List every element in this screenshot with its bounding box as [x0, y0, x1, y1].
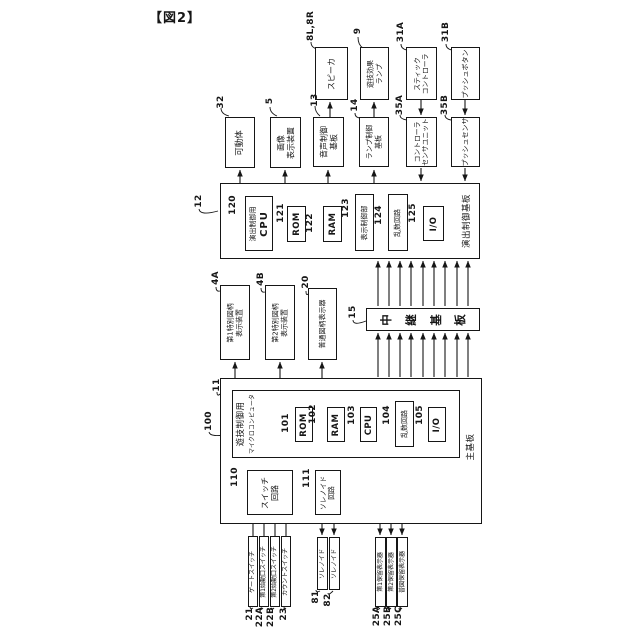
box-main-io: I/O: [428, 407, 446, 442]
box-gate-switch: ゲートスイッチ: [248, 536, 258, 607]
box-game-micro: [232, 390, 460, 458]
box-normal-hold-display: 普図保留表示器: [397, 537, 408, 607]
box-hold-display-2: 第2保留表示器: [386, 537, 397, 607]
box-relay-board: 中継基板: [366, 308, 480, 331]
box-effect-ram: RAM: [323, 206, 342, 242]
box-effect-cpu: 演出制御用 CPU: [245, 196, 273, 251]
box-hold-display-1: 第1保留表示器: [375, 537, 386, 607]
box-sound-control-board: 音声制御 基板: [313, 117, 344, 167]
box-normal-display: 普通図柄表示器: [308, 288, 337, 360]
figure-title: 【図2】: [149, 7, 201, 26]
relay-board-label: 中継基板: [367, 309, 479, 330]
box-main-cpu: CPU: [360, 407, 377, 442]
effect-cpu-sublabel: CPU: [259, 211, 270, 237]
box-solenoid-82: ソレノイド: [329, 537, 340, 590]
box-effect-lamp: 遊技効果 ランプ: [360, 47, 389, 100]
box-special-display-2: 第2特別図柄 表示装置: [265, 285, 295, 360]
effect-control-board-name: 演出制御基板: [459, 186, 475, 256]
box-controller-sensor-unit: コントローラ センサユニット: [406, 117, 437, 167]
box-speaker: スピーカ: [315, 47, 348, 100]
box-main-ram: RAM: [327, 407, 345, 442]
main-board-name: 主基板: [464, 430, 478, 464]
box-display-control: 表示制御部: [355, 194, 374, 251]
box-image-display: 画像 表示装置: [270, 117, 301, 168]
box-lamp-control-board: ランプ制御 基板: [359, 117, 389, 167]
box-effect-rom: ROM: [287, 206, 306, 242]
effect-cpu-label: 演出制御用: [248, 206, 258, 241]
box-start-switch-2: 第2始動口スイッチ: [270, 536, 280, 607]
box-effect-io: I/O: [423, 206, 444, 241]
box-push-button: プッシュボタン: [451, 47, 480, 100]
game-micro-sublabel: マイクロコンピュータ: [247, 394, 256, 454]
box-solenoid-circuit: ソレノイド 回路: [315, 470, 341, 515]
box-effect-random: 乱数回路: [388, 194, 408, 251]
box-stick-controller: スティック コントローラ: [406, 47, 437, 100]
box-count-switch: カウントスイッチ: [281, 536, 291, 607]
box-start-switch-1: 第1始動口スイッチ: [259, 536, 269, 607]
game-micro-name: 遊技制御用 マイクロコンピュータ: [234, 391, 256, 457]
box-special-display-1: 第1特別図柄 表示装置: [220, 285, 250, 360]
game-micro-label: 遊技制御用: [234, 401, 246, 446]
box-push-sensor: プッシュセンサ: [451, 117, 480, 167]
box-switch-circuit: スイッチ 回路: [247, 470, 293, 515]
box-main-random: 乱数回路: [395, 401, 414, 447]
box-solenoid-81: ソレノイド: [317, 537, 328, 590]
box-movable-body: 可動体: [225, 117, 255, 168]
patent-figure-canvas: 【図2】 スピーカ 遊技効果 ランプ スティック コントローラ プッシュボタン …: [0, 0, 640, 640]
